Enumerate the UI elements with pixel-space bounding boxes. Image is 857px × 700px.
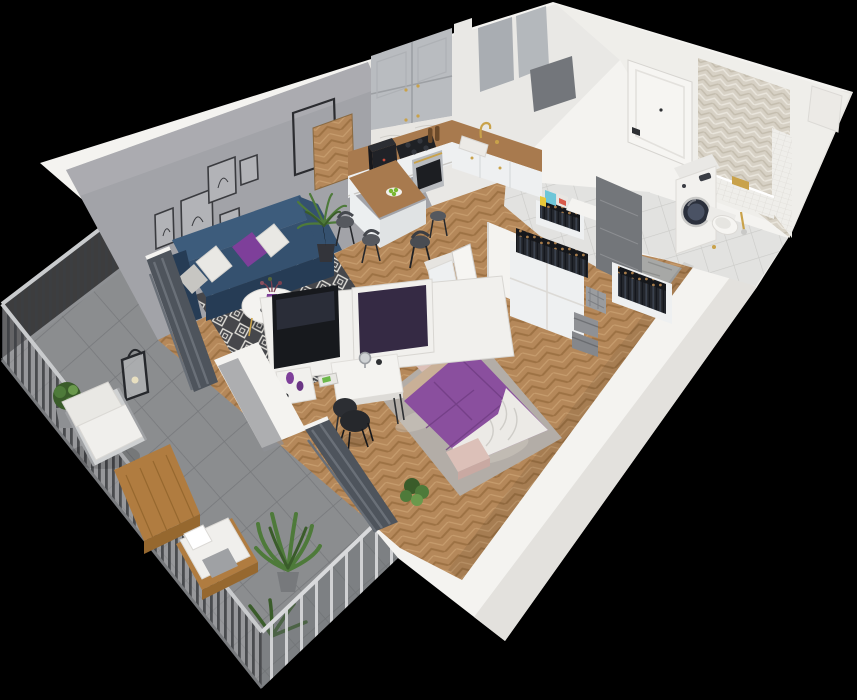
art-frame — [240, 155, 258, 185]
desk-lamp — [376, 359, 382, 365]
peephole — [659, 108, 662, 111]
vanity-mirror — [360, 353, 371, 364]
purple-vase — [297, 381, 304, 391]
art-frame — [155, 208, 174, 249]
wood-chevron-panel — [313, 114, 354, 190]
purple-vase — [286, 372, 294, 384]
lantern — [122, 350, 148, 400]
entry-closet-door — [478, 17, 514, 92]
gold-paper-holder — [712, 245, 716, 249]
tall-cabinet — [454, 18, 472, 114]
washing-machine — [674, 154, 720, 254]
floorplan-screenshot — [0, 0, 857, 700]
partition-window-glass — [358, 285, 428, 355]
floorplan-3d-render — [0, 0, 857, 700]
